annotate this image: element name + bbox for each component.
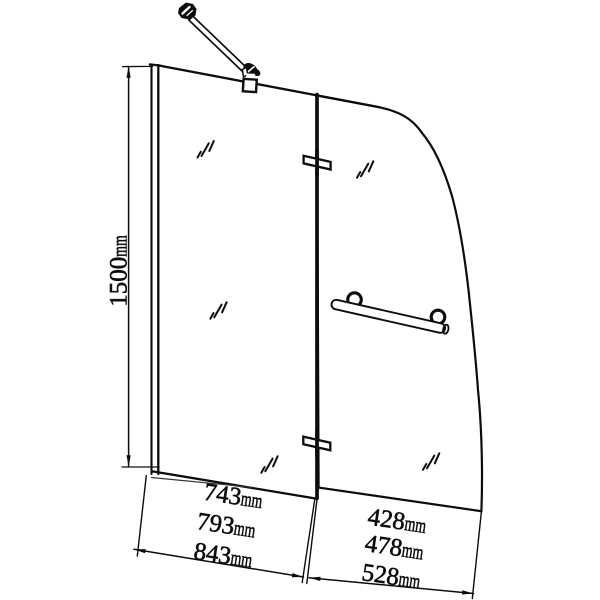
- svg-text:1500mm: 1500mm: [106, 235, 133, 307]
